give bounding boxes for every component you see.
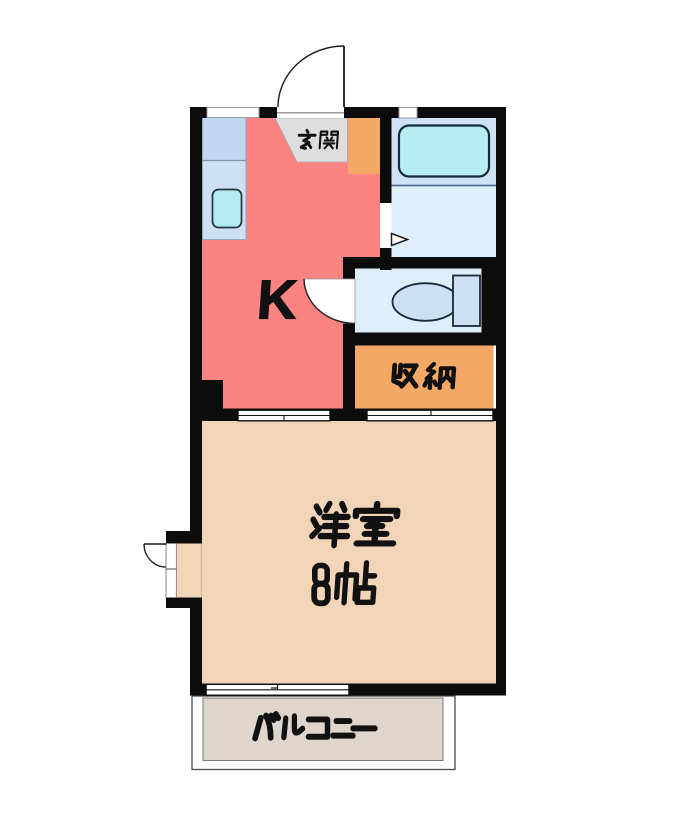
svg-text:K: K xyxy=(255,269,299,331)
